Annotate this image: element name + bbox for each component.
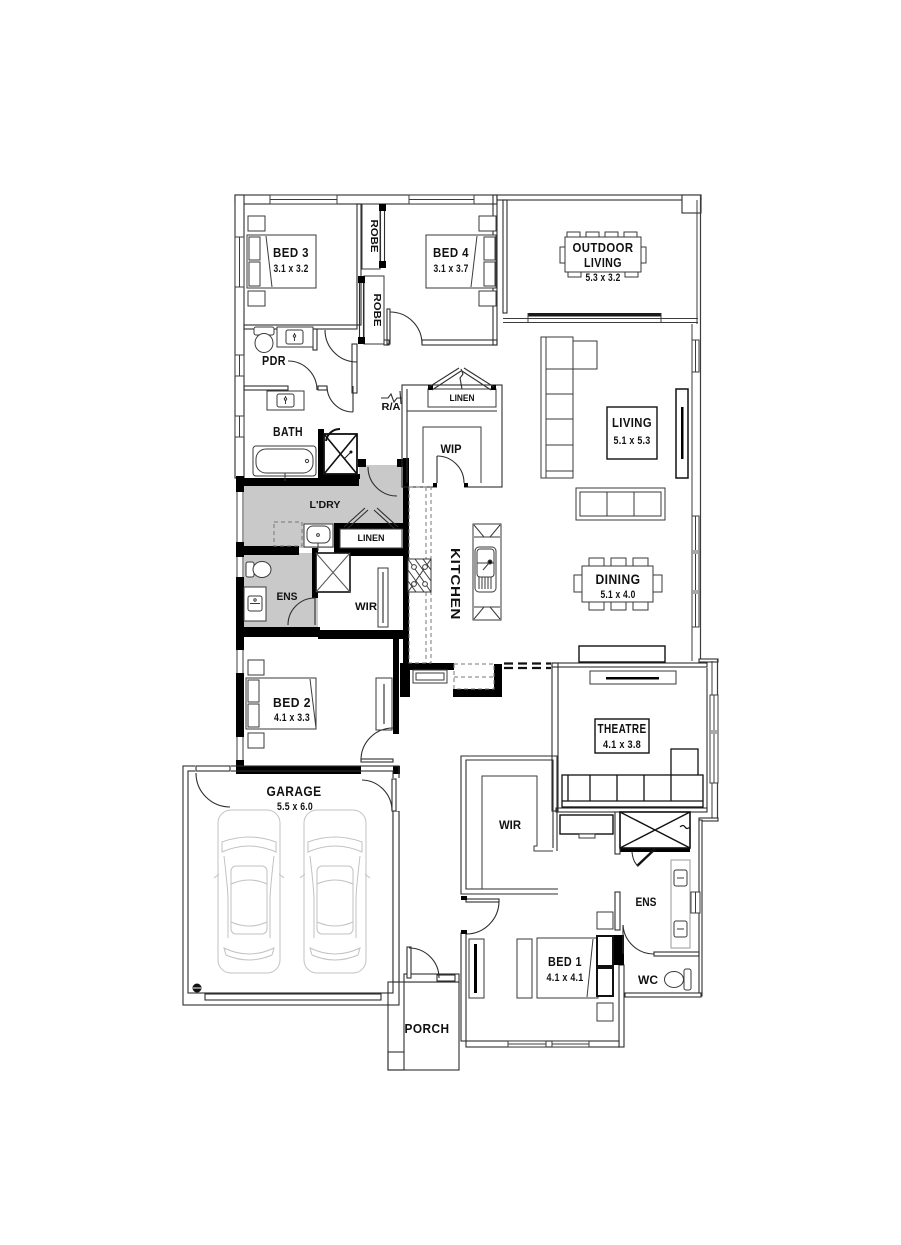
svg-text:GARAGE: GARAGE: [267, 783, 322, 799]
svg-text:BED 1: BED 1: [548, 954, 582, 969]
svg-text:L'DRY: L'DRY: [310, 499, 341, 511]
svg-text:5.1 x 4.0: 5.1 x 4.0: [601, 589, 636, 601]
svg-text:LIVING: LIVING: [584, 255, 622, 270]
svg-text:LIVING: LIVING: [612, 415, 652, 430]
svg-text:WC: WC: [638, 975, 658, 987]
svg-text:LINEN: LINEN: [358, 533, 385, 543]
svg-text:5.1 x 5.3: 5.1 x 5.3: [614, 435, 651, 447]
svg-text:WIR: WIR: [355, 601, 377, 613]
svg-text:ENS: ENS: [636, 897, 657, 909]
svg-text:ROBE: ROBE: [371, 294, 382, 327]
svg-text:DINING: DINING: [596, 571, 641, 587]
svg-text:4.1 x 3.3: 4.1 x 3.3: [274, 712, 310, 724]
svg-text:WIR: WIR: [499, 818, 521, 832]
svg-text:5.3 x 3.2: 5.3 x 3.2: [586, 272, 621, 284]
svg-text:LINEN: LINEN: [450, 393, 475, 404]
svg-text:3.1 x 3.7: 3.1 x 3.7: [434, 263, 469, 275]
svg-text:BATH: BATH: [273, 424, 303, 439]
svg-text:PORCH: PORCH: [405, 1021, 450, 1036]
svg-text:R/A: R/A: [382, 402, 401, 413]
svg-text:OUTDOOR: OUTDOOR: [573, 240, 634, 255]
svg-text:KITCHEN: KITCHEN: [448, 548, 463, 620]
svg-text:3.1 x 3.2: 3.1 x 3.2: [274, 263, 309, 275]
svg-text:PDR: PDR: [262, 353, 286, 368]
svg-text:BED 2: BED 2: [273, 695, 311, 710]
svg-text:4.1 x 4.1: 4.1 x 4.1: [547, 972, 584, 984]
svg-text:WIP: WIP: [441, 442, 462, 456]
svg-text:5.5 x 6.0: 5.5 x 6.0: [277, 801, 313, 813]
svg-text:ROBE: ROBE: [368, 220, 379, 253]
svg-text:BED 3: BED 3: [273, 245, 309, 260]
svg-text:THEATRE: THEATRE: [598, 721, 647, 736]
svg-text:BED 4: BED 4: [433, 245, 469, 260]
svg-text:ENS: ENS: [277, 591, 298, 603]
svg-text:4.1 x 3.8: 4.1 x 3.8: [603, 739, 641, 751]
